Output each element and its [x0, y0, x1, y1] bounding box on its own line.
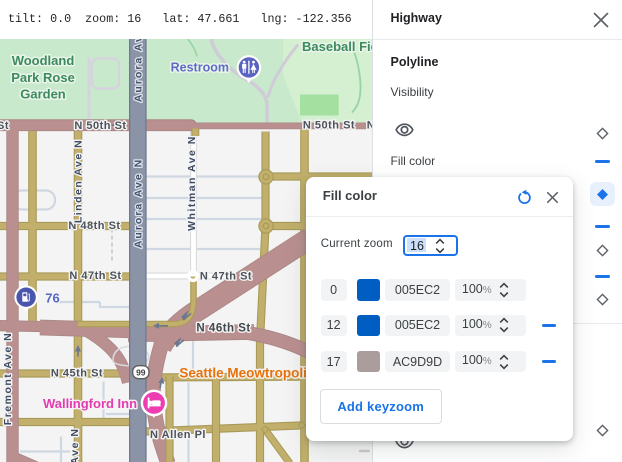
svg-text:N Allen Pl: N Allen Pl: [150, 428, 206, 440]
svg-text:Aurora Ave N: Aurora Ave N: [132, 157, 144, 247]
svg-text:Wallingford Inn: Wallingford Inn: [43, 396, 137, 411]
svg-text:Aurora Ave N: Aurora Ave N: [132, 39, 144, 102]
svg-text:N 50th St: N 50th St: [74, 120, 126, 132]
svg-text:N 45th St: N 45th St: [51, 367, 103, 379]
svg-text:Seattle Meowtropolis: Seattle Meowtropolis: [179, 365, 314, 380]
svg-text:Baseball Fie: Baseball Fie: [302, 39, 372, 54]
svg-text:Whitman Ave N: Whitman Ave N: [186, 135, 198, 231]
svg-text:76: 76: [45, 290, 59, 305]
svg-text:Ave N: Ave N: [69, 427, 81, 462]
svg-text:Park Rose: Park Rose: [11, 69, 75, 84]
svg-text:Garden: Garden: [20, 86, 66, 101]
svg-text:N 50th St: N 50th St: [303, 119, 355, 131]
svg-text:N 47th St: N 47th St: [200, 270, 252, 282]
svg-text:99: 99: [136, 367, 146, 377]
svg-text:Linden Ave N: Linden Ave N: [73, 138, 85, 222]
svg-text:St: St: [0, 120, 9, 132]
svg-text:Restroom: Restroom: [171, 60, 229, 74]
svg-text:Woodland: Woodland: [12, 53, 75, 68]
svg-text:N 46th St: N 46th St: [196, 322, 250, 334]
svg-text:N 47th St: N 47th St: [69, 270, 121, 282]
svg-text:Fremont Ave N: Fremont Ave N: [2, 331, 14, 424]
